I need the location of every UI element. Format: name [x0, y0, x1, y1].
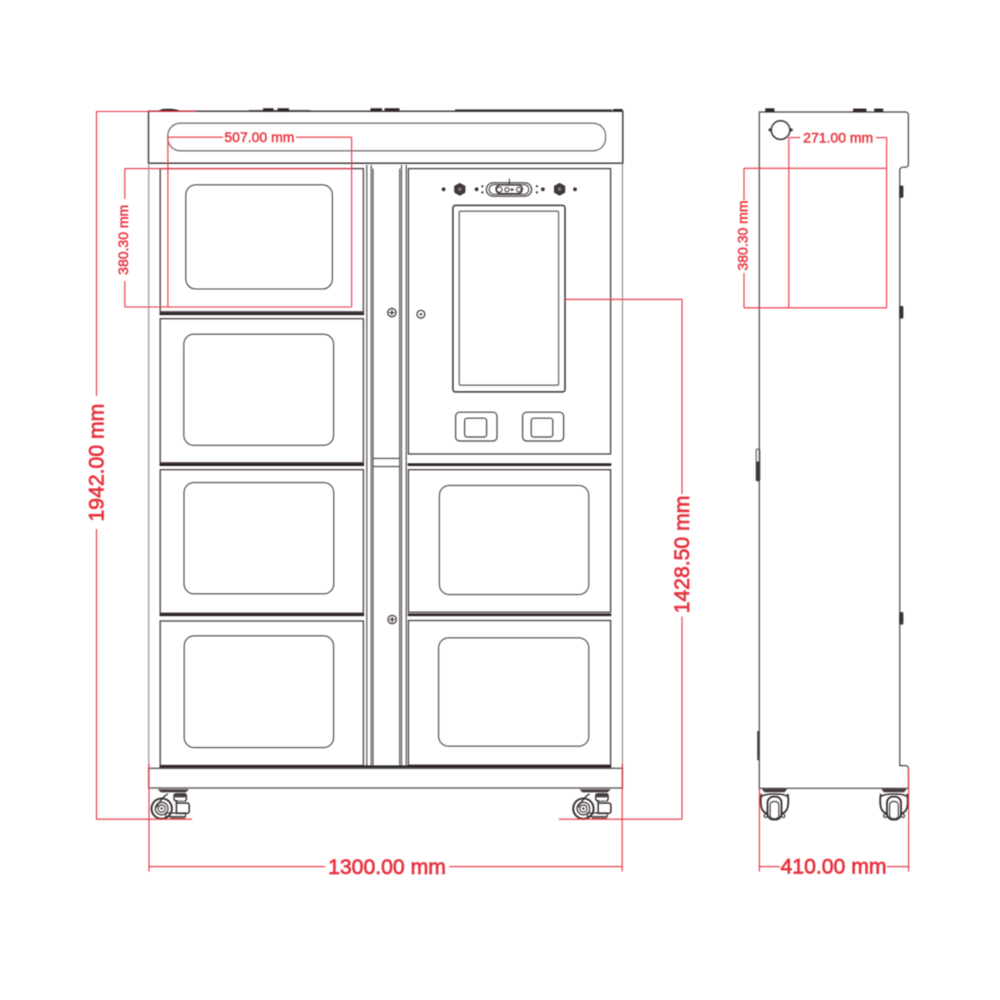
svg-text:271.00 mm: 271.00 mm [803, 130, 873, 146]
svg-text:410.00 mm: 410.00 mm [781, 856, 887, 879]
svg-text:380.30 mm: 380.30 mm [115, 205, 131, 275]
svg-text:380.30 mm: 380.30 mm [735, 200, 751, 270]
svg-text:1942.00 mm: 1942.00 mm [86, 404, 109, 522]
svg-text:1428.50 mm: 1428.50 mm [671, 496, 694, 614]
svg-text:1300.00 mm: 1300.00 mm [328, 856, 446, 879]
svg-text:507.00 mm: 507.00 mm [224, 129, 294, 145]
